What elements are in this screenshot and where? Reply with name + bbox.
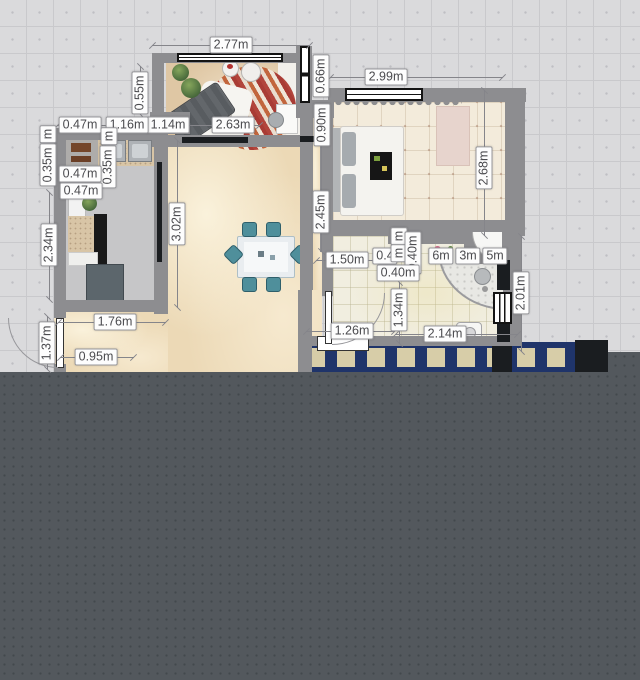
wall[interactable] — [54, 128, 168, 140]
kitchen-shelf[interactable] — [64, 136, 100, 170]
kitchen-door-symbol[interactable] — [157, 162, 162, 262]
bedroom-rug[interactable] — [436, 106, 470, 166]
dimension-line — [330, 77, 503, 78]
wall[interactable] — [54, 300, 168, 312]
dining-table[interactable] — [237, 236, 295, 278]
dimension-line — [521, 236, 522, 352]
window-bedroom[interactable] — [345, 88, 423, 101]
shelf-item-brown — [71, 143, 91, 152]
dimension-line — [47, 316, 48, 370]
wall[interactable] — [505, 102, 525, 236]
flower-icon — [443, 250, 449, 256]
wall-black-segment[interactable] — [497, 260, 510, 290]
shower-drain-icon — [482, 286, 488, 292]
bathroom-door-leaf[interactable] — [325, 291, 332, 344]
balcony-dark-block[interactable] — [492, 342, 512, 372]
dimension-line — [49, 192, 50, 300]
bed[interactable] — [330, 126, 402, 214]
flower-icon — [434, 246, 441, 253]
entry-floor[interactable] — [54, 312, 168, 372]
shower-head-icon — [474, 268, 491, 285]
tray-item-yellow — [382, 166, 387, 171]
dining-chair[interactable] — [266, 277, 281, 292]
wall[interactable] — [54, 128, 66, 318]
dimension-line — [177, 140, 178, 308]
wall[interactable] — [322, 252, 333, 296]
curtain-symbol — [334, 102, 462, 109]
window-bathroom[interactable] — [493, 292, 512, 324]
bed-tray — [370, 152, 392, 180]
floor-plan-canvas: 2.77m2.99m0.66m0.90m0.55m1.14m1.16m0.47m… — [0, 0, 640, 680]
kitchen-plant[interactable] — [82, 196, 97, 211]
dimension-line — [316, 260, 380, 261]
table-item — [258, 251, 264, 257]
desk-chair[interactable] — [268, 112, 284, 128]
sliding-door-symbol[interactable] — [300, 136, 328, 142]
unrendered-area — [0, 372, 640, 680]
dining-chair[interactable] — [266, 222, 281, 237]
kitchen-sink-right[interactable] — [128, 140, 152, 162]
sliding-door-symbol[interactable] — [182, 137, 248, 143]
dimension-line — [306, 331, 395, 332]
dimension-line — [152, 45, 310, 46]
fridge[interactable] — [86, 264, 124, 304]
table-item-2 — [270, 255, 275, 260]
wall-black-segment[interactable] — [497, 324, 510, 342]
dimension-line — [399, 282, 400, 344]
window-living-right[interactable] — [300, 46, 310, 103]
red-item-icon — [227, 64, 233, 69]
tray-item-green — [374, 156, 380, 161]
plant-2[interactable] — [181, 78, 201, 98]
dimension-line — [58, 322, 166, 323]
bed-pillow — [342, 174, 356, 208]
window-living-top[interactable] — [177, 53, 283, 62]
shelf-item-brown-2 — [71, 156, 91, 162]
dimension-line — [395, 334, 518, 335]
dining-table-top — [244, 242, 288, 272]
dimension-line — [57, 125, 260, 126]
dining-chair[interactable] — [242, 277, 257, 292]
dimension-line — [484, 90, 485, 236]
dimension-line — [60, 357, 134, 358]
kitchen-sink-left[interactable] — [102, 140, 126, 162]
side-table-2[interactable] — [241, 62, 261, 82]
dimension-line — [140, 66, 141, 115]
flower-leaf-icon — [448, 246, 453, 251]
dining-chair[interactable] — [242, 222, 257, 237]
dimension-line — [321, 120, 322, 252]
balcony-dark-block-2[interactable] — [575, 340, 608, 372]
bed-pillow — [342, 132, 356, 166]
